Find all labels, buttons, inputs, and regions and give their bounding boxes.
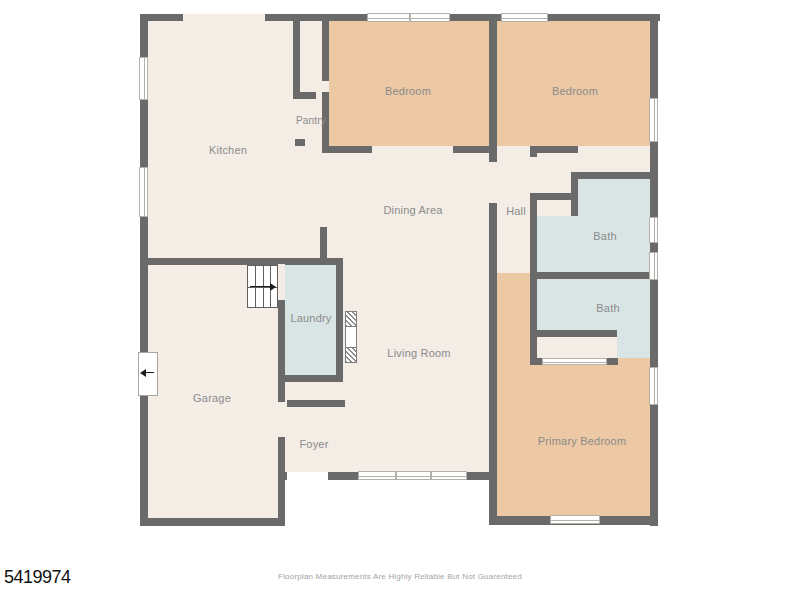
room-label-bath-2: Bath [596,302,619,314]
garage-foyer-door [278,402,285,437]
wall [489,14,497,162]
room-label-hall: Hall [506,205,526,217]
floorplan-page: KitchenPantryBedroomBedroomDining AreaHa… [0,0,800,600]
stairs-arrow-head-icon [270,283,276,291]
wall [607,358,618,365]
bath-2-door [618,358,650,365]
wall [530,193,575,200]
wall [530,146,537,157]
wall [140,518,285,526]
front-entry-door [287,472,328,480]
fireplace-hatch [346,348,356,362]
window-pane-divider [395,472,397,479]
window-center-line [654,218,655,242]
door-arrow-tail [146,372,154,373]
closet-sliding-door [542,358,607,365]
floor-primary-closet [537,337,617,360]
window-icon [139,167,148,217]
slider-track-line [543,362,606,363]
window-center-line [359,476,466,477]
floor-garage-lower [148,480,278,518]
wall [278,437,285,518]
fireplace-firebox [346,326,356,348]
room-label-laundry: Laundry [290,312,331,324]
disclaimer-text: Floorplan Measurements Are Highly Reliab… [0,572,800,581]
room-label-kitchen: Kitchen [209,144,247,156]
wall [320,227,327,265]
hall-closet-door [530,157,537,193]
wall [278,375,343,382]
window-icon [649,217,658,243]
stair-landing-opening [278,264,285,300]
wall [453,146,489,153]
floor-bedroom-2 [497,21,653,146]
stairs-direction-arrow [250,286,270,287]
room-label-living-room: Living Room [387,347,450,359]
wall [287,400,345,407]
window-icon [550,515,600,524]
stairs-icon [247,265,278,308]
window-pane-divider [409,14,411,21]
window-center-line [654,368,655,404]
pantry-door [316,92,322,99]
kitchen-top-opening [183,14,265,21]
wall [530,193,537,365]
wall [293,14,300,99]
room-label-pantry: Pantry [296,115,326,126]
wall [295,139,305,146]
wall [322,146,372,153]
window-pane-divider [430,472,432,479]
window-icon [649,98,658,142]
room-label-bedroom-1: Bedroom [385,85,431,97]
wall [537,330,617,337]
wall [533,146,578,153]
window-icon [358,471,467,480]
listing-id: 5419974 [4,567,71,588]
wall [140,258,343,265]
window-icon [367,13,450,22]
window-center-line [551,520,599,521]
dining-hall-door [489,162,497,203]
door-direction-arrow-icon [140,369,146,377]
room-label-bedroom-2: Bedroom [552,85,598,97]
wall [571,172,653,179]
window-center-line [654,253,655,279]
room-label-foyer: Foyer [299,438,328,450]
window-center-line [144,58,145,99]
floor-bedroom-1 [329,21,489,146]
wall [336,258,343,375]
room-label-bath-1: Bath [593,230,616,242]
garage-side-door [138,352,158,396]
window-center-line [654,99,655,141]
wall [533,358,542,365]
window-icon [649,252,658,280]
wall [537,272,653,279]
window-icon [501,13,548,22]
floorplan-canvas: KitchenPantryBedroomBedroomDining AreaHa… [0,0,800,600]
fireplace-icon [345,311,357,363]
fireplace-hatch [346,312,356,326]
window-center-line [502,18,547,19]
window-center-line [144,168,145,216]
wall [322,14,329,81]
wall [489,203,497,518]
bedroom-1-door [322,81,329,92]
room-label-garage: Garage [193,392,231,404]
room-label-dining-area: Dining Area [383,204,442,216]
window-icon [649,367,658,405]
window-icon [139,57,148,100]
room-label-primary-bedroom: Primary Bedroom [538,435,627,447]
wall [293,92,316,99]
wall [278,300,285,402]
